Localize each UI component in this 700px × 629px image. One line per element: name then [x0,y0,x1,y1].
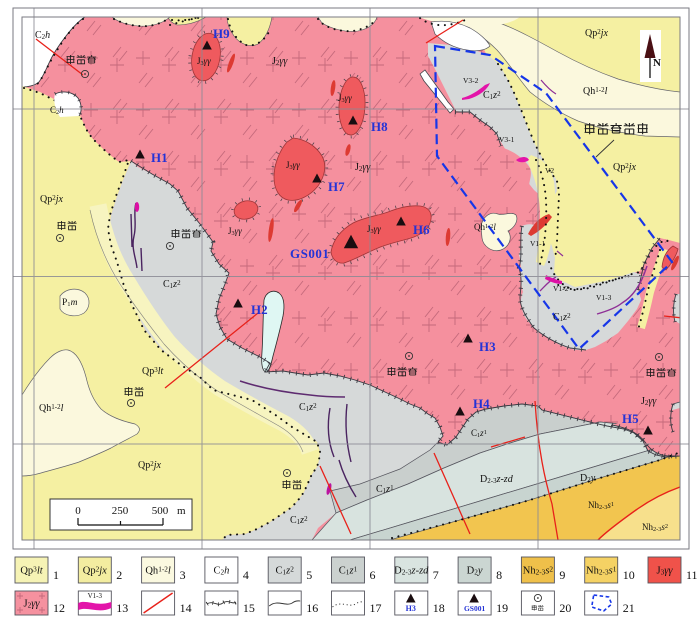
svg-text:H4: H4 [473,396,490,411]
svg-text:H3: H3 [406,604,416,613]
svg-text:7: 7 [433,568,439,582]
svg-text:1: 1 [53,568,59,582]
svg-text:D2y: D2y [467,566,483,577]
svg-text:J3γγ: J3γγ [338,93,352,104]
svg-text:Qp2jx: Qp2jx [138,460,162,471]
svg-text:2: 2 [116,568,122,582]
svg-text:Qp2jx: Qp2jx [585,28,609,39]
svg-text:C2h: C2h [213,566,229,577]
svg-text:GS001: GS001 [290,246,329,261]
svg-text:21: 21 [623,601,635,615]
svg-text:P1m: P1m [62,298,78,308]
svg-text:V2: V2 [545,166,554,175]
svg-text:9: 9 [559,568,565,582]
svg-text:J3γγ: J3γγ [656,566,673,577]
svg-text:8: 8 [496,568,502,582]
svg-text:V1-2: V1-2 [553,284,569,293]
svg-text:J2γγ: J2γγ [23,599,40,610]
svg-text:Qp3lt: Qp3lt [142,366,164,377]
svg-text:3: 3 [180,568,186,582]
svg-text:Qp2jx: Qp2jx [83,564,107,576]
svg-text:15: 15 [243,601,255,615]
svg-text:H3: H3 [479,339,496,354]
svg-text:D2-3z-zd: D2-3z-zd [480,474,514,485]
svg-text:250: 250 [112,505,129,517]
svg-text:V3-1: V3-1 [499,135,515,144]
svg-text:H5: H5 [622,411,639,426]
svg-text:5: 5 [306,568,312,582]
svg-text:D2-3z-zd: D2-3z-zd [394,566,429,577]
svg-text:20: 20 [559,601,571,615]
svg-text:Qp2jx: Qp2jx [40,194,64,205]
svg-text:H1: H1 [151,150,168,165]
svg-text:12: 12 [53,601,65,615]
svg-text:N: N [653,57,661,69]
svg-text:V3-2: V3-2 [463,76,479,85]
svg-text:Qh1-2l: Qh1-2l [145,564,171,576]
svg-text:6: 6 [370,568,376,582]
svg-text:V1-3: V1-3 [596,293,612,302]
svg-text:4: 4 [243,568,249,582]
svg-text:0: 0 [75,505,81,517]
svg-text:11: 11 [686,568,698,582]
svg-text:13: 13 [116,601,128,615]
svg-text:J2γγ: J2γγ [641,396,657,407]
svg-text:m: m [177,505,186,517]
svg-text:14: 14 [180,601,192,615]
svg-text:H8: H8 [371,119,388,134]
svg-text:Qp3lt: Qp3lt [20,564,43,576]
svg-text:GS001: GS001 [464,604,486,613]
svg-text:V1-1: V1-1 [530,239,546,248]
svg-text:J3γγ: J3γγ [367,224,381,235]
svg-text:10: 10 [623,568,635,582]
svg-text:17: 17 [370,601,382,615]
svg-text:J2γγ: J2γγ [355,162,371,173]
svg-text:J3γγ: J3γγ [286,160,300,171]
svg-text:16: 16 [306,601,318,615]
svg-text:18: 18 [433,601,445,615]
svg-text:H2: H2 [251,302,268,317]
svg-text:V1-3: V1-3 [88,592,103,600]
svg-text:H7: H7 [328,179,345,194]
svg-text:J2γγ: J2γγ [272,56,288,67]
svg-text:500: 500 [152,505,169,517]
svg-text:H9: H9 [213,26,230,41]
svg-text:Qp2jx: Qp2jx [613,162,637,173]
svg-text:19: 19 [496,601,508,615]
svg-text:J3γγ: J3γγ [197,56,211,67]
svg-text:H6: H6 [413,222,430,237]
svg-text:J3γγ: J3γγ [228,226,242,237]
